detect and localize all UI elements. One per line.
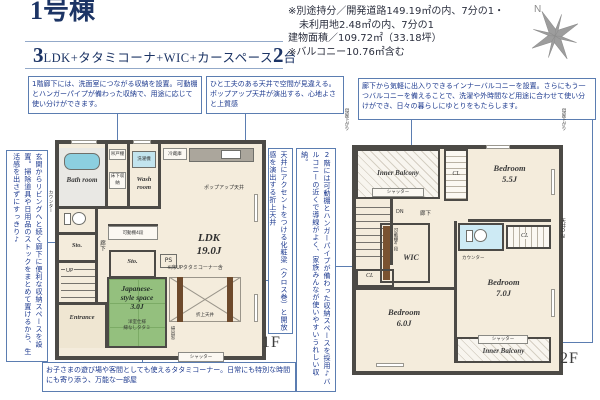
callout-beam: 天井にアクセントをつける化粧梁（クロス巻）と開放感を演出する折上天井	[268, 148, 293, 334]
bedroom2-size: 6.0J	[356, 318, 452, 329]
divider-top	[25, 41, 283, 42]
plan-rooms-count: 3	[33, 43, 44, 67]
bedroom1-size: 5.5J	[468, 174, 551, 185]
callout-tatami-corner: お子さまの遊び場や客間としても使えるタタミコーナー。日常にも特別な時間にも寄り添…	[42, 362, 296, 392]
connector-line	[592, 119, 593, 343]
closet-right-label: CL	[520, 233, 529, 239]
compass: N	[522, 0, 584, 62]
counter-label-1f: カウンター	[47, 190, 53, 224]
plan-rooms-text: LDK+タタミコーナ+WIC+カースペース	[44, 51, 274, 65]
window	[551, 169, 555, 195]
callout-1f-storage: 1階廊下には、洗面室につながる収納を設置。可動棚とハンガーパイプが備わった収納で…	[28, 76, 202, 114]
inner-balcony-bottom-label: Inner Balcony	[456, 347, 551, 355]
compass-rose-icon: N	[522, 0, 584, 62]
wic-shelf-label: 可動棚4段	[392, 228, 398, 270]
divider-bottom	[25, 68, 283, 69]
property-info: ※別途持分／開発道路149.19㎡の内、7分の1・ 未利用地2.48㎡の内、7分…	[288, 5, 553, 59]
window	[254, 294, 258, 322]
bedroom1-label: Bedroom 5.5J	[468, 163, 551, 185]
toilet-bowl	[72, 212, 86, 225]
callout-popup-ceiling: ひと工夫のある天井で空間が見違える。ポップアップ天井が演出する、心地よさと上質感	[206, 76, 344, 114]
coffered-ceiling-label: 折上天井	[187, 312, 223, 318]
movable-shelf-label: 可動棚4段	[108, 226, 158, 240]
wall	[158, 144, 161, 206]
closet-left	[356, 269, 394, 287]
closet-top-label: CL	[448, 171, 464, 177]
roof-slope-label-right: 母屋下がり	[560, 108, 566, 148]
floor-plan-1f: Bath room 吊戸棚 床下収納 洗濯機 Wash room 冷蔵庫 ポップ…	[55, 140, 266, 360]
sweep-window-label: 掃出窓	[169, 326, 175, 348]
toilet-bowl-2f	[474, 229, 487, 242]
building-title: 1号棟	[30, 0, 95, 27]
toilet-tank-2f	[466, 230, 473, 242]
bedroom3-size: 7.0J	[456, 288, 551, 299]
wall	[105, 144, 108, 206]
building-title-text: 1号棟	[30, 0, 95, 25]
shutter-label-1f: シャッター	[178, 352, 224, 362]
japanese-space-line2: style space	[107, 293, 167, 302]
ldk-label: LDK 19.0J	[177, 232, 241, 258]
plan-summary: 3LDK+タタミコーナ+WIC+カースペース2台	[33, 43, 297, 68]
hallway-label: 廊下	[98, 240, 106, 262]
wic-label: WIC	[394, 253, 428, 262]
storage1-label: Sto.	[61, 242, 93, 249]
wall	[356, 287, 454, 290]
ceiling-down-label: 天井DN	[560, 218, 567, 248]
toilet-tank	[64, 213, 71, 225]
ldk-note: ※床UPタタミコーナー含	[155, 264, 235, 271]
underfloor-storage-label: 床下収納	[109, 172, 126, 189]
callout-2f-storage: 2階には可動棚とハンガーパイプが備わった収納スペースを採用♪バルコニーの近くで導…	[296, 148, 336, 392]
flyer-page: 1号棟 3LDK+タタミコーナ+WIC+カースペース2台 ※別途持分／開発道路1…	[0, 0, 600, 400]
japanese-space-label: Japanese- style space 3.0J	[107, 284, 167, 311]
japanese-space-line1: Japanese-	[107, 284, 167, 293]
window	[71, 140, 97, 144]
entrance-label: Entrance	[59, 314, 105, 321]
wall	[127, 144, 130, 206]
floor-label-2f: 2F	[560, 350, 579, 368]
bathtub	[64, 153, 100, 170]
washing-machine: 洗濯機	[132, 151, 156, 168]
kitchen-sink	[221, 150, 241, 159]
ldk-size: 19.0J	[177, 245, 241, 258]
washroom-label: Wash room	[129, 176, 159, 191]
info-line-balcony: ※バルコニー10.76㎡含む	[288, 46, 553, 60]
bathroom-label: Bath room	[63, 176, 101, 184]
entrance-area	[59, 305, 105, 348]
compass-n-label: N	[534, 4, 541, 15]
japanese-space-note2: 縁なしタタミ	[107, 326, 167, 332]
inner-balcony-top-label: Inner Balcony	[356, 169, 440, 177]
info-line-area: 建物面積／109.72㎡（33.18坪）	[288, 32, 553, 46]
ldk-name: LDK	[177, 232, 241, 245]
window	[254, 194, 258, 222]
counter-label-2f: カウンター	[462, 255, 485, 261]
wall	[468, 219, 551, 222]
bedroom3-name: Bedroom	[456, 277, 551, 288]
japanese-space-note: 洋室仕様 縁なしタタミ	[107, 320, 167, 332]
callout-entrance-storage: 玄関からリビングへと続く廊下に便利な収納スペースを設置。掃除道具や日用品のストッ…	[6, 150, 48, 362]
window	[133, 140, 151, 144]
closet-left-label: CL	[366, 273, 373, 279]
window	[376, 363, 404, 367]
info-line-unused: 未利用地2.48㎡の内、7分の1	[288, 19, 553, 33]
wall	[59, 232, 98, 235]
refrigerator-label: 冷蔵庫	[163, 148, 187, 160]
hanging-cabinet-label: 吊戸棚	[109, 149, 126, 160]
storage2-label: Sto.	[109, 258, 156, 265]
bedroom3-label: Bedroom 7.0J	[456, 277, 551, 299]
popup-ceiling-label: ポップアップ天井	[193, 184, 255, 191]
shutter-label-2f-bottom: シャッター	[478, 335, 528, 344]
info-line-share: ※別途持分／開発道路149.19㎡の内、7分の1・	[288, 5, 553, 19]
floor-plan-2f: Inner Balcony シャッター DN 廊下 CL Bedroom 5.5…	[352, 145, 563, 375]
plan-cars-count: 2	[273, 43, 284, 67]
hallway-label-2f: 廊下	[420, 209, 431, 217]
bedroom2-name: Bedroom	[356, 307, 452, 318]
window	[551, 289, 555, 317]
japanese-space-size: 3.0J	[107, 302, 167, 311]
stairs-up-label: UP	[65, 268, 74, 274]
stairs-down-label: DN	[396, 209, 404, 215]
window	[486, 145, 510, 149]
shutter-label-2f-top: シャッター	[372, 188, 424, 197]
floor-label-1f: 1F	[262, 334, 281, 352]
roof-slope-label-left: 母屋下がり	[343, 108, 349, 148]
wall	[59, 206, 161, 209]
bedroom2-label: Bedroom 6.0J	[356, 307, 452, 329]
bedroom1-name: Bedroom	[468, 163, 551, 174]
